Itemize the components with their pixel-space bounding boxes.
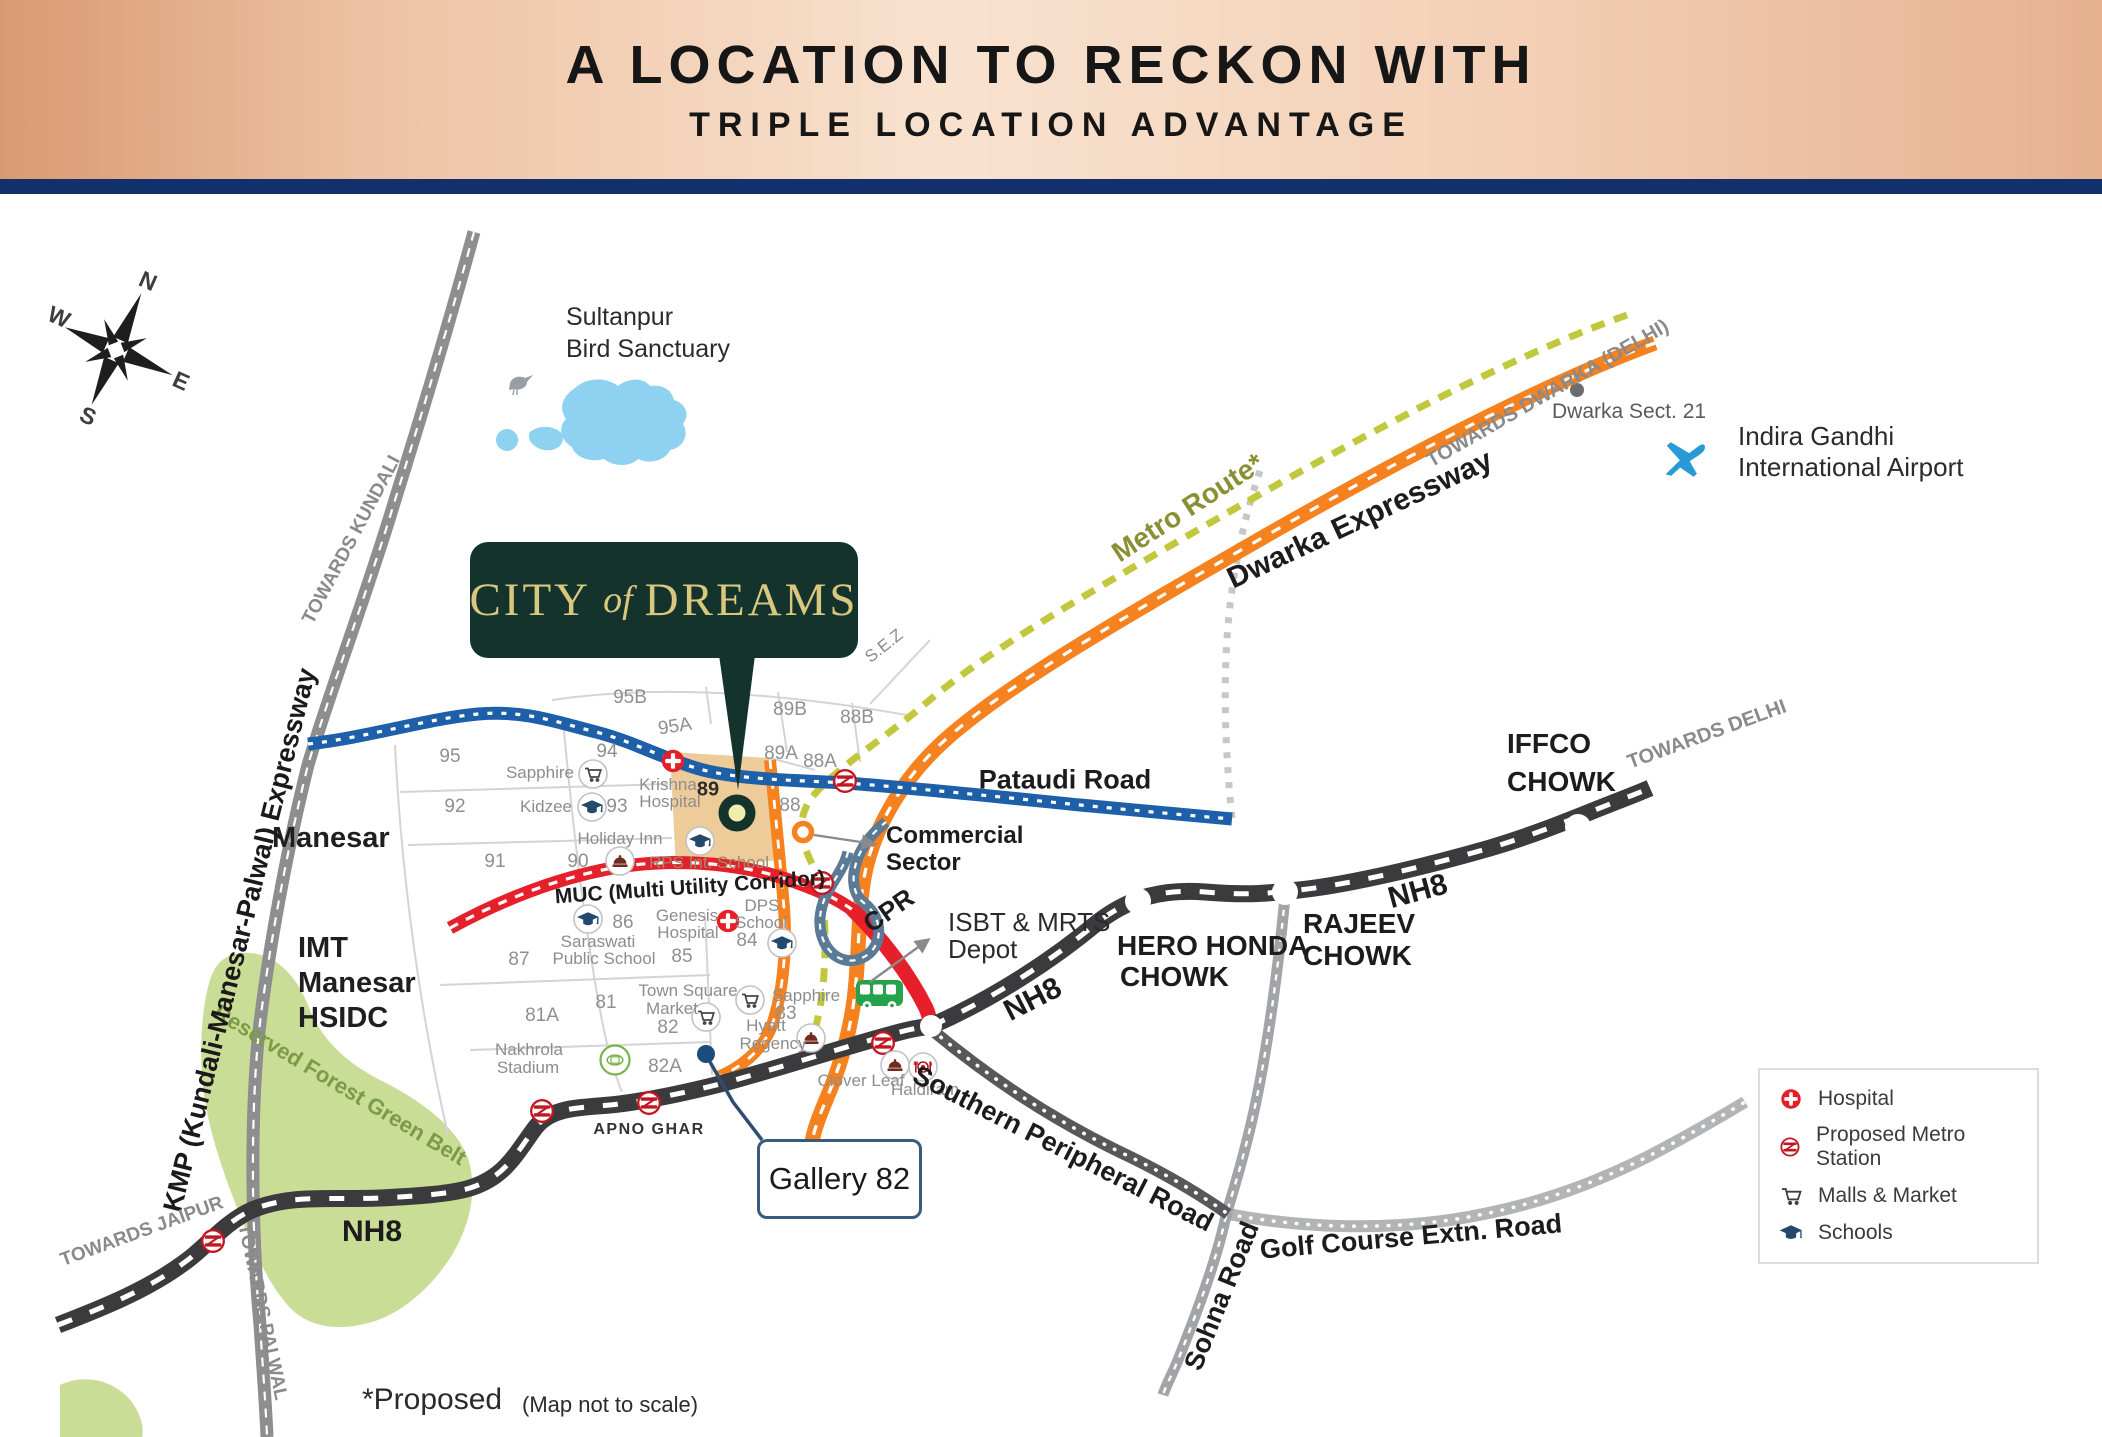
airport-label-1: Indira Gandhi — [1738, 422, 1894, 452]
sultanpur-label-1: Sultanpur — [566, 303, 673, 332]
krishna-hospital-label-2: Hospital — [639, 792, 700, 812]
hospital-icon — [662, 750, 684, 772]
road-proposed-link-dotted — [1225, 465, 1262, 818]
commercial-sector-marker — [795, 824, 812, 841]
logo-word-of: of — [603, 578, 633, 622]
sector-label: 82A — [648, 1056, 682, 1078]
sector-label: 92 — [444, 796, 465, 818]
iffco-chowk-label-2: CHOWK — [1507, 766, 1616, 798]
page-header: A LOCATION TO RECKON WITH TRIPLE LOCATIO… — [0, 0, 2102, 179]
proposed-footnote: *Proposed — [362, 1383, 502, 1418]
scale-footnote: (Map not to scale) — [522, 1392, 698, 1417]
logo-word-city: CITY — [469, 573, 591, 627]
sector-label: 86 — [612, 912, 633, 934]
mall-icon — [1778, 1183, 1804, 1209]
sector-label: 95B — [613, 687, 647, 709]
hero-honda-chowk-label-2: CHOWK — [1120, 961, 1229, 993]
page-title: A LOCATION TO RECKON WITH — [566, 34, 1537, 96]
sapphire-83-label: Sapphire — [772, 986, 840, 1006]
dps-school-label-2: School — [735, 913, 787, 933]
header-divider-bar — [0, 179, 2102, 194]
city-of-dreams-marker — [719, 655, 756, 832]
nakhrola-label-1: Nakhrola — [495, 1040, 563, 1060]
sector-label: 88B — [840, 707, 874, 729]
gallery-82-callout: Gallery 82 — [757, 1139, 922, 1219]
genesis-hospital-label-2: Hospital — [657, 923, 718, 943]
school-icon — [768, 929, 796, 957]
stadium-icon — [601, 1046, 630, 1075]
iffco-chowk-label-1: IFFCO — [1507, 728, 1591, 760]
town-square-label-2: Market — [646, 999, 698, 1019]
sector-label: 95 — [439, 746, 460, 768]
location-map-page: A LOCATION TO RECKON WITH TRIPLE LOCATIO… — [0, 0, 2102, 1437]
hyatt-label-2: Regency — [739, 1034, 806, 1054]
imt-label-1: IMT — [298, 932, 348, 965]
sector-label: 91 — [484, 851, 505, 873]
isbt-label-2: Depot — [948, 935, 1017, 965]
sector-label: 88A — [803, 751, 837, 773]
sector-label: 89A — [764, 743, 798, 765]
legend-item-schools: Schools — [1778, 1220, 2019, 1246]
mall-icon — [736, 986, 764, 1014]
legend-item-metro: Proposed Metro Station — [1778, 1123, 2019, 1171]
pataudi-road-label: Pataudi Road — [979, 764, 1152, 795]
rajeev-chowk-label-2: CHOWK — [1303, 940, 1412, 972]
hyatt-label-1: Hyatt — [746, 1016, 786, 1036]
bird-icon — [509, 375, 533, 395]
commercial-sector-label-2: Sector — [886, 849, 961, 877]
sector-label: 90 — [567, 851, 588, 873]
metro-station-icon — [834, 770, 856, 792]
town-square-label-1: Town Square — [638, 981, 737, 1001]
sector-label: 93 — [606, 796, 627, 818]
school-icon — [578, 793, 606, 821]
page-subtitle: TRIPLE LOCATION ADVANTAGE — [689, 106, 1413, 145]
school-icon — [686, 827, 714, 855]
metro-station-icon — [872, 1032, 894, 1054]
manesar-label: Manesar — [272, 822, 390, 855]
metro-station-icon — [638, 1092, 660, 1114]
imt-label-2: Manesar — [298, 967, 416, 1000]
sector-label: 89B — [773, 699, 807, 721]
legend-item-hospital: Hospital — [1778, 1086, 2019, 1112]
apno-ghar-label: APNO GHAR — [593, 1121, 704, 1139]
hotel-icon — [606, 847, 634, 875]
sector-label: 88 — [779, 795, 800, 817]
legend-label: Malls & Market — [1818, 1184, 1957, 1208]
sapphire-94-label: Sapphire — [506, 763, 574, 783]
nh8-label-sw: NH8 — [342, 1215, 402, 1250]
sultanpur-label-2: Bird Sanctuary — [566, 335, 730, 364]
map-legend: Hospital Proposed Metro Station Malls & … — [1758, 1068, 2039, 1264]
mall-icon — [579, 760, 607, 788]
imt-label-3: HSIDC — [298, 1002, 388, 1035]
sector-label: 87 — [508, 949, 529, 971]
hero-honda-chowk-label-1: HERO HONDA — [1117, 930, 1308, 962]
airport-icon — [1657, 433, 1713, 485]
commercial-sector-label-1: Commercial — [886, 822, 1023, 850]
kidzee-label: Kidzee — [520, 797, 572, 817]
gallery-82-dot — [697, 1045, 715, 1063]
legend-label: Schools — [1818, 1221, 1893, 1245]
sector-label: 85 — [671, 946, 692, 968]
nakhrola-label-2: Stadium — [497, 1058, 559, 1078]
legend-label: Hospital — [1818, 1087, 1894, 1111]
bus-icon — [856, 980, 903, 1010]
rajeev-chowk-label-1: RAJEEV — [1303, 908, 1415, 940]
airport-label-2: International Airport — [1738, 453, 1963, 483]
sector-label: 82 — [657, 1017, 678, 1039]
school-icon — [574, 905, 602, 933]
rps-school-label: RPS Int. School — [649, 853, 769, 873]
sector-label: 94 — [596, 741, 617, 763]
metro-station-icon — [202, 1230, 224, 1252]
dwarka-sect-21-label: Dwarka Sect. 21 — [1552, 400, 1706, 424]
sector-label: 84 — [736, 930, 757, 952]
logo-word-dreams: DREAMS — [645, 573, 859, 627]
metro-station-icon — [1778, 1134, 1802, 1160]
hospital-icon — [1778, 1086, 1804, 1112]
city-of-dreams-logo: CITY of DREAMS — [470, 542, 858, 658]
legend-item-malls: Malls & Market — [1778, 1183, 2019, 1209]
holiday-inn-label: Holiday Inn — [577, 829, 662, 849]
legend-label: Proposed Metro Station — [1816, 1123, 2019, 1171]
saraswati-label-2: Public School — [552, 949, 655, 969]
sector-label: 81A — [525, 1005, 559, 1027]
metro-station-icon — [531, 1100, 553, 1122]
school-icon — [1778, 1220, 1804, 1246]
bird-sanctuary-water — [496, 380, 686, 466]
road-golf-course-extn — [1228, 1102, 1745, 1226]
sector-label: 81 — [595, 992, 616, 1014]
compass-icon — [40, 271, 197, 430]
